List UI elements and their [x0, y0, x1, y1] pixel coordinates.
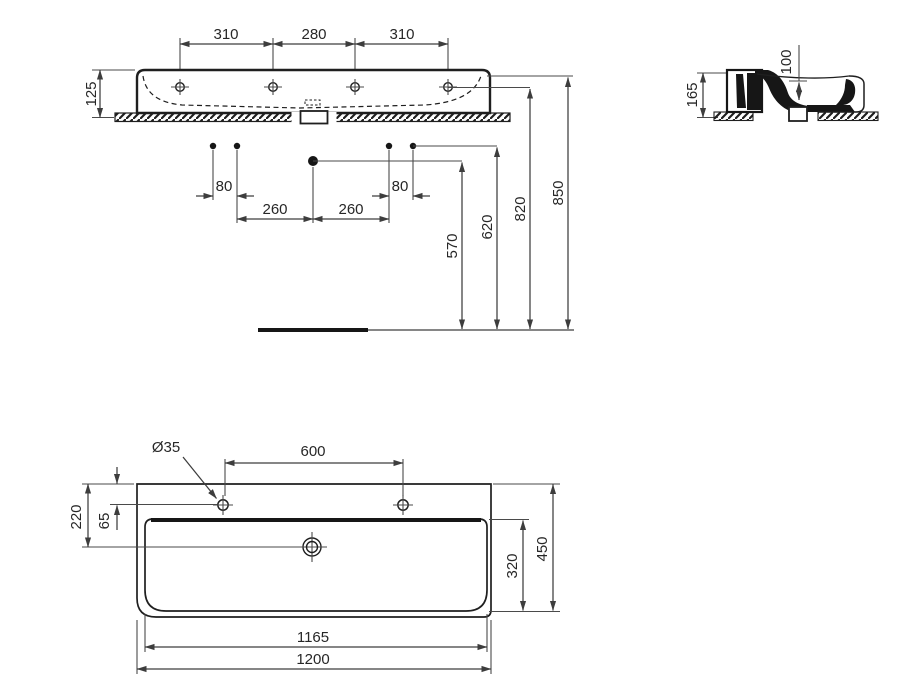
dim-label-165: 165	[684, 82, 701, 107]
dim-label-dia35: Ø35	[152, 439, 180, 456]
dim-label-570: 570	[444, 233, 461, 258]
dim-label-260-right: 260	[338, 201, 363, 218]
dim-label-80-left: 80	[216, 178, 233, 195]
dimension-widths: 1165 1200	[137, 614, 491, 674]
dimension-depths: 320 450	[489, 484, 560, 612]
side-section-view: 165 100	[684, 45, 878, 121]
dim-label-1200: 1200	[296, 651, 329, 668]
base-hatch-right	[818, 112, 878, 121]
dim-label-125: 125	[83, 81, 100, 106]
basin-front-outline	[137, 70, 490, 113]
dim-label-65: 65	[96, 513, 113, 530]
fixing-dot	[210, 143, 216, 149]
dim-label-220: 220	[68, 504, 85, 529]
dim-label-320: 320	[504, 553, 521, 578]
fixing-dot	[386, 143, 392, 149]
dim-label-450: 450	[534, 536, 551, 561]
dim-label-850: 850	[550, 180, 567, 205]
base-hatch-left	[714, 112, 753, 121]
dim-label-310-right: 310	[389, 26, 414, 43]
bowl-plan-outline	[145, 519, 487, 611]
waste-box	[301, 111, 328, 124]
dim-label-100: 100	[778, 49, 795, 74]
wall-fixing-points	[210, 143, 416, 223]
dimension-fix-pair-right-80: 80	[372, 178, 430, 196]
dim-label-620: 620	[479, 214, 496, 239]
dimension-tap-pitches: 310 280 310	[180, 26, 448, 44]
front-elevation-view: 310 280 310 125 80	[83, 26, 574, 330]
dim-label-260-left: 260	[262, 201, 287, 218]
dim-label-600: 600	[300, 443, 325, 460]
washbasin-technical-drawing: 310 280 310 125 80	[0, 0, 912, 699]
fixing-dot	[234, 143, 240, 149]
dim-label-310-left: 310	[213, 26, 238, 43]
dimension-apron-125: 125	[83, 70, 135, 118]
dim-label-1165: 1165	[297, 629, 329, 646]
dim-label-820: 820	[512, 196, 529, 221]
plan-view: Ø35 600 220 65	[68, 439, 560, 674]
mounting-shelf	[115, 111, 510, 124]
dimension-fix-pair-left-80: 80	[196, 178, 254, 196]
dim-label-280: 280	[301, 26, 326, 43]
dimension-height-165: 165	[684, 73, 729, 118]
side-waste-box	[789, 107, 807, 121]
dim-label-80-right: 80	[392, 178, 409, 195]
technical-drawing-page: 310 280 310 125 80	[0, 0, 912, 699]
